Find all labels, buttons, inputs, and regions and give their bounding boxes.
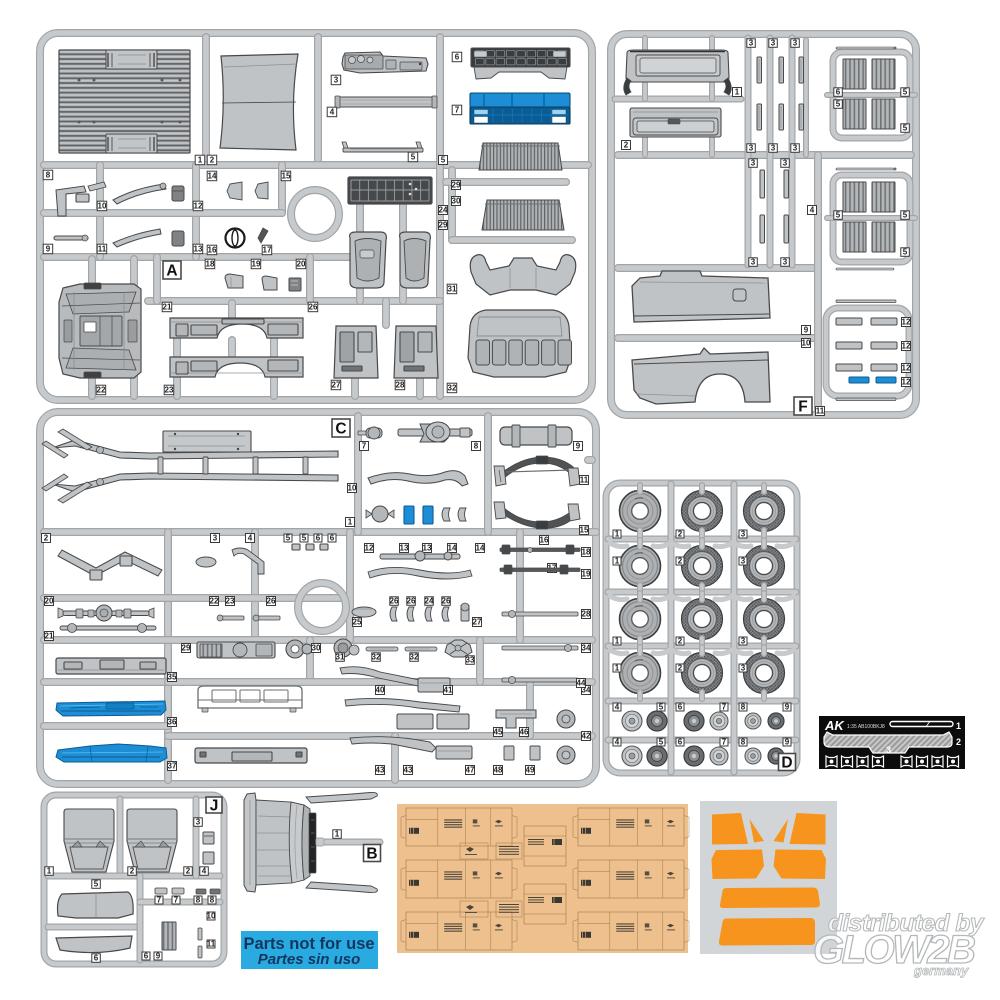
svg-text:germany: germany (913, 963, 969, 978)
svg-text:A: A (166, 262, 177, 279)
svg-text:4: 4 (248, 534, 253, 543)
svg-text:28: 28 (396, 381, 405, 390)
svg-text:14: 14 (208, 172, 217, 181)
svg-text:4: 4 (810, 206, 815, 215)
svg-text:12: 12 (902, 342, 911, 351)
svg-text:5: 5 (286, 534, 291, 543)
svg-text:48: 48 (494, 766, 503, 775)
svg-text:27: 27 (332, 381, 341, 390)
svg-text:12: 12 (902, 318, 911, 327)
svg-text:9: 9 (804, 326, 809, 335)
svg-text:40: 40 (376, 686, 385, 695)
svg-text:4: 4 (615, 738, 620, 747)
svg-text:17: 17 (263, 246, 272, 255)
svg-text:8: 8 (741, 703, 746, 712)
svg-text:34: 34 (582, 644, 591, 653)
svg-text:16: 16 (208, 246, 217, 255)
svg-text:21: 21 (45, 632, 54, 641)
svg-text:3: 3 (771, 144, 776, 153)
svg-text:7: 7 (157, 896, 162, 905)
svg-text:5: 5 (903, 124, 908, 133)
svg-text:4: 4 (330, 108, 335, 117)
svg-text:29: 29 (182, 644, 191, 653)
svg-text:6: 6 (455, 53, 460, 62)
svg-text:9: 9 (46, 245, 51, 254)
svg-text:4: 4 (202, 867, 207, 876)
svg-text:10: 10 (98, 202, 107, 211)
svg-text:36: 36 (168, 718, 177, 727)
svg-text:1: 1 (615, 637, 620, 646)
svg-text:1: 1 (735, 88, 740, 97)
svg-text:15: 15 (282, 172, 291, 181)
svg-text:3: 3 (783, 258, 788, 267)
svg-text:28: 28 (582, 610, 591, 619)
svg-text:8: 8 (210, 896, 215, 905)
svg-text:2: 2 (624, 141, 629, 150)
svg-text:11: 11 (816, 407, 825, 416)
svg-text:6: 6 (836, 88, 841, 97)
svg-text:32: 32 (372, 653, 381, 662)
svg-text:44: 44 (577, 679, 586, 688)
svg-text:13: 13 (423, 544, 432, 553)
svg-text:10: 10 (802, 339, 811, 348)
svg-text:26: 26 (442, 597, 451, 606)
svg-text:41: 41 (444, 686, 453, 695)
svg-text:7: 7 (455, 106, 460, 115)
svg-text:10: 10 (207, 912, 216, 921)
svg-text:6: 6 (678, 738, 683, 747)
svg-text:1: 1 (956, 721, 961, 731)
svg-text:32: 32 (448, 384, 457, 393)
svg-text:19: 19 (252, 260, 261, 269)
svg-text:31: 31 (336, 653, 345, 662)
svg-text:16: 16 (540, 536, 549, 545)
svg-text:14: 14 (476, 544, 485, 553)
svg-text:5: 5 (94, 880, 99, 889)
svg-text:F: F (798, 398, 807, 415)
svg-text:12: 12 (902, 364, 911, 373)
svg-text:5: 5 (836, 100, 841, 109)
svg-text:2: 2 (678, 530, 683, 539)
svg-text:5: 5 (903, 88, 908, 97)
svg-text:5: 5 (411, 153, 416, 162)
svg-text:6: 6 (678, 703, 683, 712)
svg-text:6: 6 (316, 534, 321, 543)
svg-text:6: 6 (330, 534, 335, 543)
svg-text:27: 27 (473, 618, 482, 627)
svg-text:20: 20 (297, 260, 306, 269)
svg-text:37: 37 (168, 762, 177, 771)
svg-text:1: 1 (348, 518, 353, 527)
svg-text:20: 20 (45, 597, 54, 606)
svg-text:47: 47 (466, 766, 475, 775)
svg-text:2: 2 (210, 156, 215, 165)
svg-text:23: 23 (226, 597, 235, 606)
svg-text:26: 26 (390, 597, 399, 606)
svg-text:3: 3 (749, 39, 754, 48)
svg-text:5: 5 (836, 211, 841, 220)
svg-text:12: 12 (194, 202, 203, 211)
svg-text:11: 11 (207, 940, 216, 949)
svg-text:AK: AK (824, 718, 845, 733)
svg-text:43: 43 (404, 766, 413, 775)
svg-text:29: 29 (439, 221, 448, 230)
svg-text:3: 3 (751, 258, 756, 267)
svg-text:2: 2 (678, 664, 683, 673)
svg-text:10: 10 (348, 484, 357, 493)
svg-text:1: 1 (615, 530, 620, 539)
svg-text:19: 19 (582, 570, 591, 579)
svg-text:3: 3 (196, 818, 201, 827)
svg-text:30: 30 (312, 644, 321, 653)
svg-text:9: 9 (576, 442, 581, 451)
svg-text:3: 3 (771, 39, 776, 48)
svg-text:5: 5 (659, 738, 664, 747)
svg-text:2: 2 (44, 534, 49, 543)
svg-text:2: 2 (678, 637, 683, 646)
svg-text:1: 1 (615, 557, 620, 566)
svg-text:8: 8 (46, 171, 51, 180)
svg-text:24: 24 (439, 206, 448, 215)
svg-text:2: 2 (186, 867, 191, 876)
svg-text:7: 7 (722, 703, 727, 712)
svg-text:9: 9 (785, 703, 790, 712)
svg-text:18: 18 (582, 548, 591, 557)
svg-text:6: 6 (144, 952, 149, 961)
svg-text:13: 13 (400, 544, 409, 553)
svg-text:7: 7 (362, 442, 367, 451)
svg-text:1: 1 (198, 156, 203, 165)
svg-text:1: 1 (47, 867, 52, 876)
svg-text:3: 3 (783, 159, 788, 168)
svg-text:23: 23 (165, 386, 174, 395)
svg-text:21: 21 (163, 303, 172, 312)
svg-text:22: 22 (210, 597, 219, 606)
svg-text:12: 12 (902, 378, 911, 387)
svg-text:26: 26 (309, 303, 318, 312)
svg-text:45: 45 (494, 728, 503, 737)
svg-text:3: 3 (793, 39, 798, 48)
svg-text:9: 9 (785, 738, 790, 747)
svg-text:22: 22 (97, 386, 106, 395)
svg-text:8: 8 (196, 896, 201, 905)
svg-text:11: 11 (580, 476, 589, 485)
svg-text:B: B (366, 845, 377, 862)
svg-text:43: 43 (376, 766, 385, 775)
svg-text:3: 3 (741, 664, 746, 673)
svg-text:24: 24 (425, 597, 434, 606)
svg-text:18: 18 (206, 260, 215, 269)
svg-text:46: 46 (520, 728, 529, 737)
svg-text:3: 3 (749, 144, 754, 153)
svg-text:3: 3 (793, 144, 798, 153)
svg-text:3: 3 (334, 76, 339, 85)
svg-text:1: 1 (335, 830, 340, 839)
svg-text:6: 6 (94, 954, 99, 963)
svg-text:33: 33 (466, 656, 475, 665)
svg-text:3: 3 (751, 159, 756, 168)
svg-text:D: D (781, 754, 792, 771)
svg-text:5: 5 (903, 248, 908, 257)
svg-text:26: 26 (267, 597, 276, 606)
svg-text:5: 5 (441, 156, 446, 165)
svg-text:7: 7 (174, 896, 179, 905)
svg-text:30: 30 (452, 197, 461, 206)
svg-text:49: 49 (526, 766, 535, 775)
svg-text:4: 4 (615, 703, 620, 712)
svg-text:25: 25 (353, 618, 362, 627)
svg-text:3: 3 (741, 530, 746, 539)
svg-text:26: 26 (407, 597, 416, 606)
svg-text:3: 3 (213, 534, 218, 543)
svg-text:13: 13 (194, 245, 203, 254)
svg-text:8: 8 (474, 442, 479, 451)
svg-text:5: 5 (302, 534, 307, 543)
svg-text:31: 31 (448, 285, 457, 294)
svg-text:29: 29 (452, 181, 461, 190)
svg-text:3: 3 (741, 637, 746, 646)
svg-text:J: J (210, 797, 219, 814)
svg-text:11: 11 (98, 245, 107, 254)
svg-text:8: 8 (741, 738, 746, 747)
svg-text:C: C (335, 420, 346, 437)
svg-text:Partes sin uso: Partes sin uso (258, 951, 361, 968)
svg-text:32: 32 (410, 653, 419, 662)
svg-text:35: 35 (168, 673, 177, 682)
svg-text:42: 42 (582, 732, 591, 741)
svg-text:2: 2 (678, 557, 683, 566)
svg-text:15: 15 (580, 526, 589, 535)
svg-text:1: 1 (615, 664, 620, 673)
svg-text:2: 2 (130, 867, 135, 876)
svg-text:12: 12 (365, 544, 374, 553)
svg-text:3: 3 (741, 557, 746, 566)
svg-text:1:35 AB100BKJ8: 1:35 AB100BKJ8 (847, 724, 885, 730)
svg-text:3: 3 (886, 745, 891, 755)
svg-text:14: 14 (448, 544, 457, 553)
svg-text:7: 7 (722, 738, 727, 747)
svg-text:9: 9 (156, 952, 161, 961)
svg-text:5: 5 (903, 211, 908, 220)
svg-text:5: 5 (659, 703, 664, 712)
svg-text:2: 2 (956, 737, 961, 747)
